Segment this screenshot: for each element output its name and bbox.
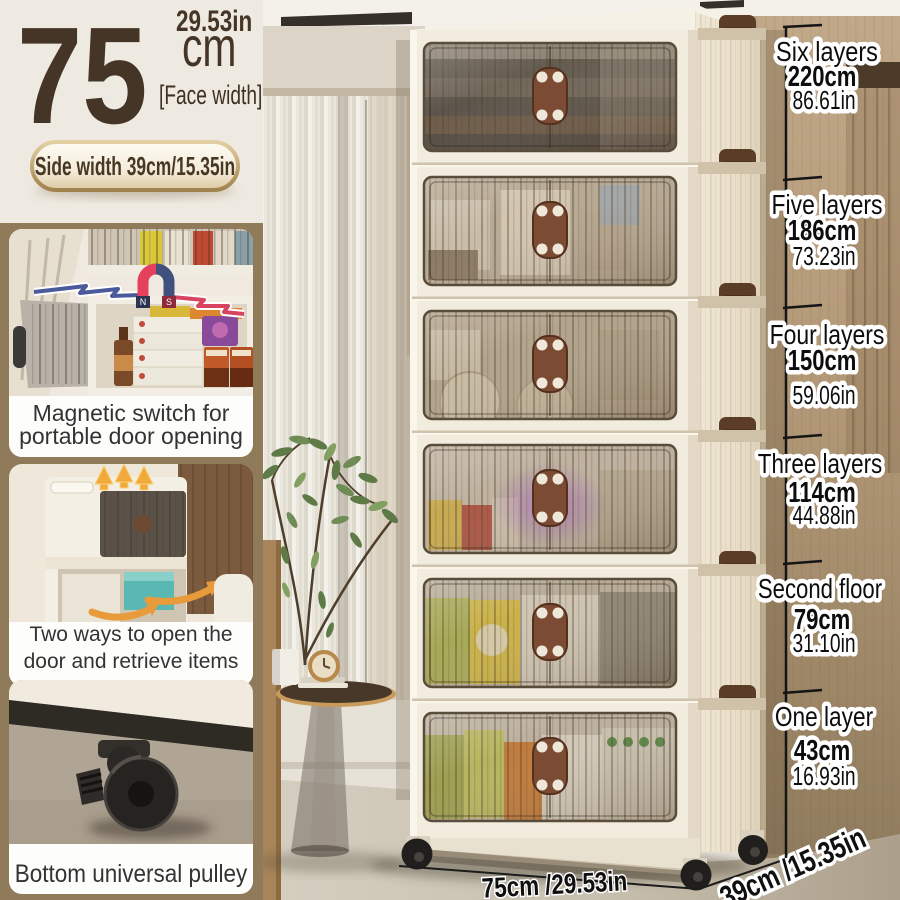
svg-text:Second floor: Second floor <box>758 574 882 605</box>
svg-text:44.88in: 44.88in <box>792 500 855 530</box>
svg-text:Two ways to open the: Two ways to open the <box>29 623 232 646</box>
svg-text:S: S <box>166 297 172 307</box>
svg-text:75: 75 <box>17 0 147 153</box>
svg-text:86.61in: 86.61in <box>792 85 855 115</box>
svg-text:portable door opening: portable door opening <box>19 423 243 449</box>
svg-text:59.06in: 59.06in <box>792 380 855 410</box>
svg-text:Bottom universal pulley: Bottom universal pulley <box>15 860 248 888</box>
svg-text:door and retrieve items: door and retrieve items <box>24 650 239 673</box>
svg-text:73.23in: 73.23in <box>792 241 855 271</box>
svg-text:Side width 39cm/15.35in: Side width 39cm/15.35in <box>35 152 235 181</box>
svg-text:N: N <box>140 297 147 307</box>
svg-text:[Face width]: [Face width] <box>159 80 262 110</box>
svg-text:150cm: 150cm <box>788 345 857 377</box>
svg-text:Three layers: Three layers <box>758 449 882 480</box>
svg-text:31.10in: 31.10in <box>792 628 855 658</box>
svg-text:One layer: One layer <box>775 702 874 733</box>
svg-text:16.93in: 16.93in <box>792 761 855 791</box>
svg-text:cm: cm <box>182 17 236 79</box>
